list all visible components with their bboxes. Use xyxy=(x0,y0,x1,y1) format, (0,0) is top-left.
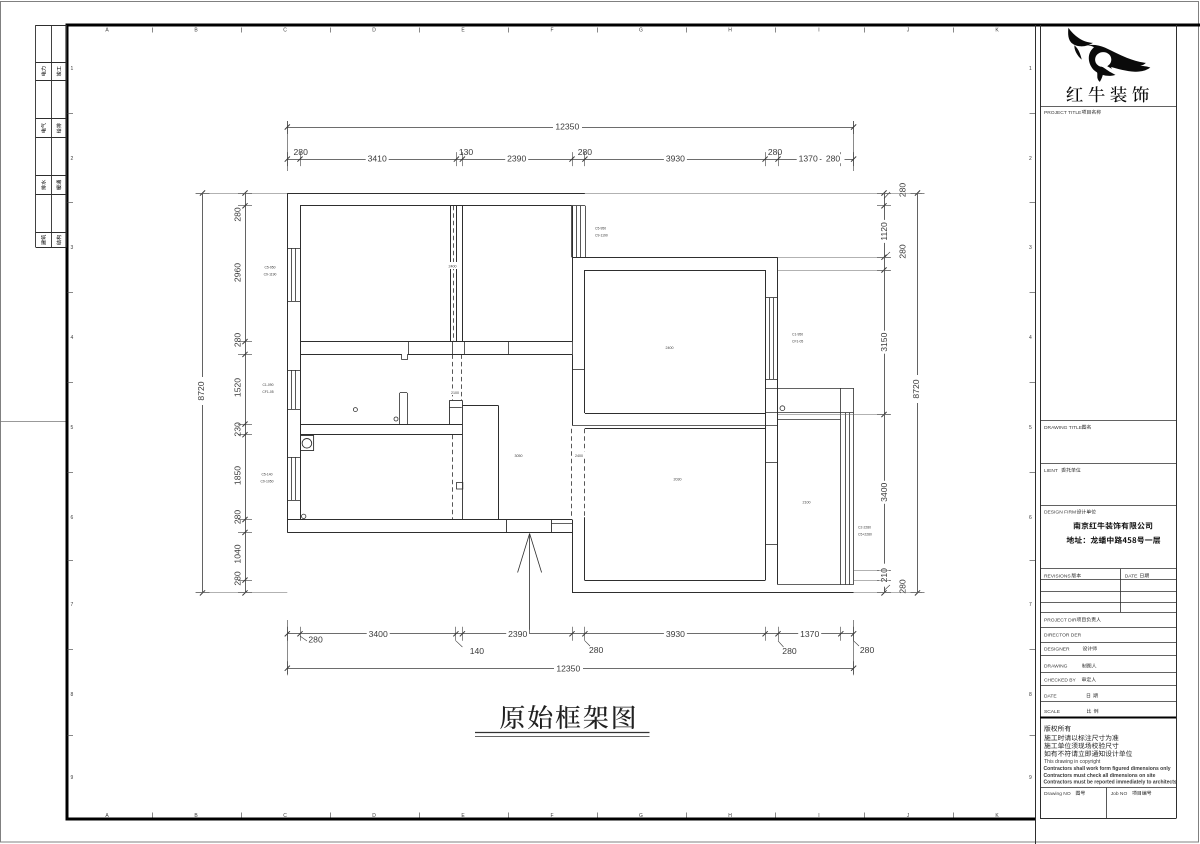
svg-text:5: 5 xyxy=(1029,425,1032,431)
svg-text:280: 280 xyxy=(768,147,783,157)
svg-text:2: 2 xyxy=(1029,156,1032,162)
svg-text:12350: 12350 xyxy=(556,664,580,674)
svg-text:J: J xyxy=(907,28,910,34)
svg-text:Contractors must check all dim: Contractors must check all dimensions on… xyxy=(1044,773,1156,779)
svg-text:C5-140: C5-140 xyxy=(261,473,272,477)
svg-text:3410: 3410 xyxy=(368,154,387,164)
svg-text:DRAWING: DRAWING xyxy=(1044,664,1068,670)
svg-text:F: F xyxy=(550,813,553,819)
svg-text:1520: 1520 xyxy=(233,378,243,397)
svg-text:CF1-05: CF1-05 xyxy=(262,390,273,394)
svg-text:280: 280 xyxy=(860,645,875,655)
svg-text:3050: 3050 xyxy=(515,454,523,458)
svg-text:Drawing NO: Drawing NO xyxy=(1044,791,1071,797)
svg-text:2400: 2400 xyxy=(575,454,583,458)
svg-text:D: D xyxy=(372,813,376,819)
svg-text:REVISIONS: REVISIONS xyxy=(1044,573,1071,579)
svg-text:130: 130 xyxy=(459,147,474,157)
svg-text:3930: 3930 xyxy=(666,629,685,639)
svg-text:E: E xyxy=(461,28,465,34)
svg-text:7: 7 xyxy=(71,602,74,608)
svg-text:C: C xyxy=(283,813,287,819)
svg-text:C9-1190: C9-1190 xyxy=(264,273,277,277)
svg-text:PROJECT TITLE: PROJECT TITLE xyxy=(1044,110,1082,116)
svg-text:C9-1190: C9-1190 xyxy=(595,234,608,238)
svg-text:Contractors shall work form fi: Contractors shall work form figured dime… xyxy=(1044,766,1171,772)
svg-text:C5-950: C5-950 xyxy=(595,227,606,231)
svg-text:K: K xyxy=(995,28,999,34)
svg-text:280: 280 xyxy=(308,635,323,645)
svg-text:3: 3 xyxy=(71,245,74,251)
svg-text:DIRECTOR DER: DIRECTOR DER xyxy=(1044,632,1082,638)
svg-text:3930: 3930 xyxy=(666,154,685,164)
svg-text:1370: 1370 xyxy=(799,154,818,164)
svg-text:2960: 2960 xyxy=(233,263,243,282)
svg-text:9: 9 xyxy=(1029,775,1032,781)
svg-text:280: 280 xyxy=(826,154,841,164)
svg-text:This drawing in copyright: This drawing in copyright xyxy=(1044,759,1101,765)
svg-text:C1-950: C1-950 xyxy=(792,333,803,337)
svg-text:280: 280 xyxy=(233,571,243,586)
svg-text:H: H xyxy=(728,813,732,819)
svg-text:8720: 8720 xyxy=(911,379,921,398)
svg-text:2100: 2100 xyxy=(451,391,459,395)
svg-text:3150: 3150 xyxy=(879,332,889,351)
svg-text:DATE: DATE xyxy=(1044,693,1057,699)
svg-text:280: 280 xyxy=(233,510,243,525)
svg-text:280: 280 xyxy=(233,207,243,222)
svg-text:210: 210 xyxy=(879,568,889,583)
svg-text:7: 7 xyxy=(1029,602,1032,608)
svg-text:2: 2 xyxy=(71,156,74,162)
svg-text:CHECKED BY: CHECKED BY xyxy=(1044,677,1077,683)
svg-text:12350: 12350 xyxy=(555,121,579,131)
svg-text:G: G xyxy=(639,28,643,34)
svg-text:2390: 2390 xyxy=(507,154,526,164)
svg-text:6: 6 xyxy=(1029,515,1032,521)
svg-text:280: 280 xyxy=(578,147,593,157)
svg-text:280: 280 xyxy=(898,579,908,594)
svg-text:D: D xyxy=(372,28,376,34)
svg-text:3: 3 xyxy=(1029,245,1032,251)
svg-text:2400: 2400 xyxy=(666,346,674,350)
svg-text:1040: 1040 xyxy=(233,544,243,563)
svg-text:F: F xyxy=(550,28,553,34)
svg-text:DATE: DATE xyxy=(1125,573,1138,579)
svg-text:280: 280 xyxy=(782,646,797,656)
svg-text:9: 9 xyxy=(71,775,74,781)
svg-text:I: I xyxy=(818,28,819,34)
svg-text:1120: 1120 xyxy=(879,222,889,241)
svg-text:8: 8 xyxy=(71,692,74,698)
svg-text:C9-1050: C9-1050 xyxy=(260,480,273,484)
svg-text:C: C xyxy=(283,28,287,34)
svg-text:C2-2280: C2-2280 xyxy=(858,526,871,530)
svg-text:8720: 8720 xyxy=(196,381,206,400)
svg-text:DESIGN FIRM: DESIGN FIRM xyxy=(1044,510,1076,516)
svg-text:Job NO: Job NO xyxy=(1111,791,1128,797)
svg-text:1370: 1370 xyxy=(800,629,819,639)
svg-text:2390: 2390 xyxy=(508,629,527,639)
svg-text:A: A xyxy=(105,28,109,34)
svg-text:PROJECT DIR: PROJECT DIR xyxy=(1044,617,1077,623)
svg-text:C1-090: C1-090 xyxy=(262,383,273,387)
svg-text:280: 280 xyxy=(898,183,908,198)
svg-text:230: 230 xyxy=(233,422,243,437)
svg-text:6: 6 xyxy=(71,515,74,521)
svg-text:2030: 2030 xyxy=(674,478,682,482)
svg-text:CF1-05: CF1-05 xyxy=(792,340,803,344)
svg-text:G: G xyxy=(639,813,643,819)
svg-text:280: 280 xyxy=(294,147,309,157)
svg-text:3400: 3400 xyxy=(879,483,889,502)
svg-text:280: 280 xyxy=(898,244,908,259)
svg-text:B: B xyxy=(194,28,198,34)
svg-text:I: I xyxy=(818,813,819,819)
svg-text:5: 5 xyxy=(71,425,74,431)
svg-text:1: 1 xyxy=(1029,66,1032,72)
svg-text:2400: 2400 xyxy=(449,265,457,269)
svg-text:1850: 1850 xyxy=(233,466,243,485)
svg-text:2100: 2100 xyxy=(803,501,811,505)
svg-text:DESIGNER: DESIGNER xyxy=(1044,646,1070,652)
svg-text:1: 1 xyxy=(71,66,74,72)
svg-text:280: 280 xyxy=(233,333,243,348)
svg-text:LIENT: LIENT xyxy=(1044,468,1058,474)
svg-text:4: 4 xyxy=(1029,335,1032,341)
svg-text:3400: 3400 xyxy=(369,629,388,639)
svg-text:4: 4 xyxy=(71,335,74,341)
svg-text:SCALE: SCALE xyxy=(1044,709,1061,715)
svg-text:140: 140 xyxy=(470,646,485,656)
svg-text:DRAWING TITLE: DRAWING TITLE xyxy=(1044,425,1083,431)
svg-text:280: 280 xyxy=(589,645,604,655)
svg-text:H: H xyxy=(728,28,732,34)
svg-text:8: 8 xyxy=(1029,692,1032,698)
svg-text:C5+2280: C5+2280 xyxy=(858,533,872,537)
svg-text:Contractors must be reported i: Contractors must be reported immediately… xyxy=(1044,780,1177,786)
svg-text:C5-950: C5-950 xyxy=(264,266,275,270)
